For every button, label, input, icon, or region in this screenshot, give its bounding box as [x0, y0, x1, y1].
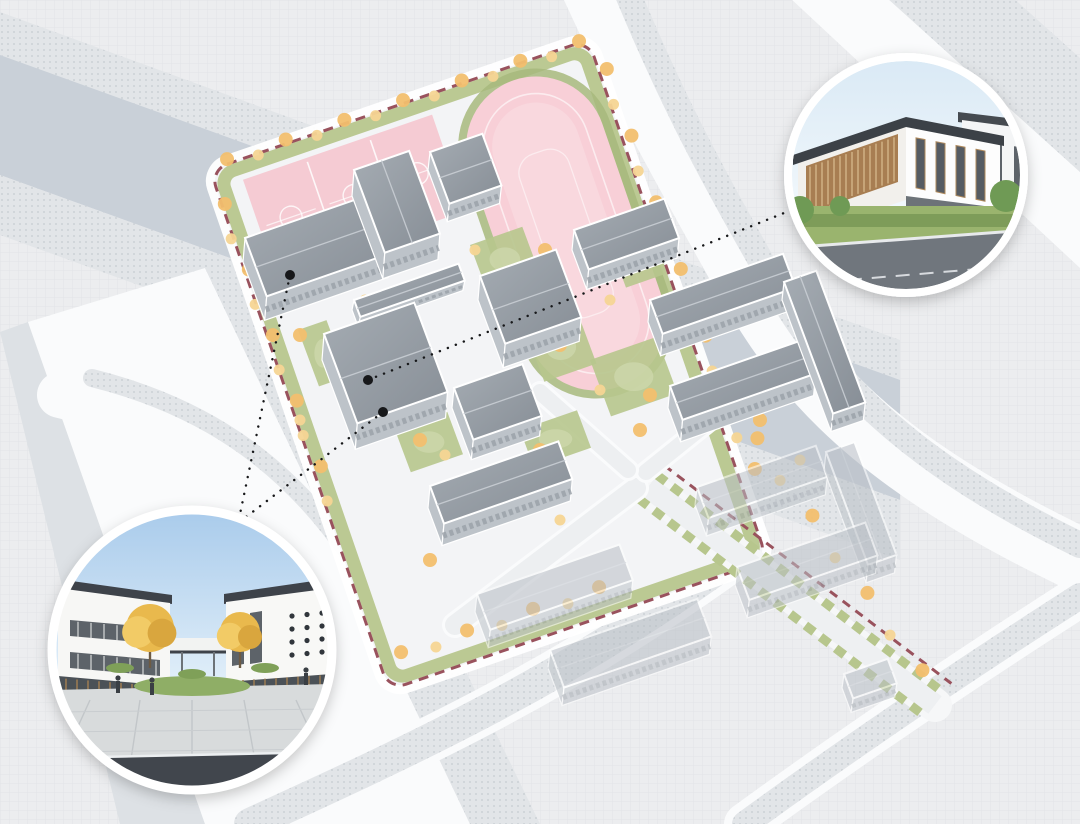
tree-icon — [413, 433, 427, 447]
tree-icon — [253, 150, 264, 161]
tree-icon — [555, 515, 566, 526]
tree-icon — [572, 34, 586, 48]
tree-icon — [546, 51, 557, 62]
masterplan-figure — [0, 0, 1080, 824]
tree-icon — [370, 110, 381, 121]
tree-icon — [470, 245, 481, 256]
tree-icon — [295, 415, 306, 426]
tree-icon — [394, 645, 408, 659]
tree-icon — [220, 152, 234, 166]
tree-icon — [605, 295, 616, 306]
tree-icon — [513, 54, 527, 68]
tree-icon — [274, 364, 285, 375]
tree-icon — [298, 430, 309, 441]
connector-anchor-dot — [285, 270, 295, 280]
tree-icon — [455, 73, 469, 87]
tree-icon — [314, 459, 328, 473]
tree-icon — [279, 132, 293, 146]
tree-icon — [337, 113, 351, 127]
tree-icon — [595, 385, 606, 396]
person-silhouette — [303, 667, 308, 672]
shrub-icon — [830, 196, 850, 216]
tree-icon — [322, 496, 333, 507]
connector-anchor-dot — [378, 407, 388, 417]
tree-icon — [460, 623, 474, 637]
tree-icon — [487, 71, 498, 82]
tree-icon — [293, 328, 307, 342]
tree-icon — [624, 129, 638, 143]
tree-icon — [885, 630, 896, 641]
tree-icon — [311, 130, 322, 141]
tree-icon — [396, 93, 410, 107]
person-silhouette — [115, 675, 120, 680]
tree-icon — [633, 166, 644, 177]
tree-icon — [218, 197, 232, 211]
tree-icon — [226, 233, 237, 244]
tree-icon — [608, 99, 619, 110]
tree-icon — [731, 432, 742, 443]
tree-icon — [805, 509, 819, 523]
tree-icon — [674, 262, 688, 276]
tree-icon — [429, 91, 440, 102]
tree-icon — [915, 663, 929, 677]
tree-icon — [440, 450, 451, 461]
tree-icon — [290, 394, 304, 408]
tree-icon — [430, 642, 441, 653]
person-silhouette — [149, 677, 154, 682]
masterplan-canvas — [0, 0, 1080, 824]
tree-icon — [600, 62, 614, 76]
connector-anchor-dot — [363, 375, 373, 385]
tree-icon — [860, 586, 874, 600]
tree-icon — [423, 553, 437, 567]
tree-icon — [750, 431, 764, 445]
tree-icon — [633, 423, 647, 437]
tree-icon — [643, 388, 657, 402]
